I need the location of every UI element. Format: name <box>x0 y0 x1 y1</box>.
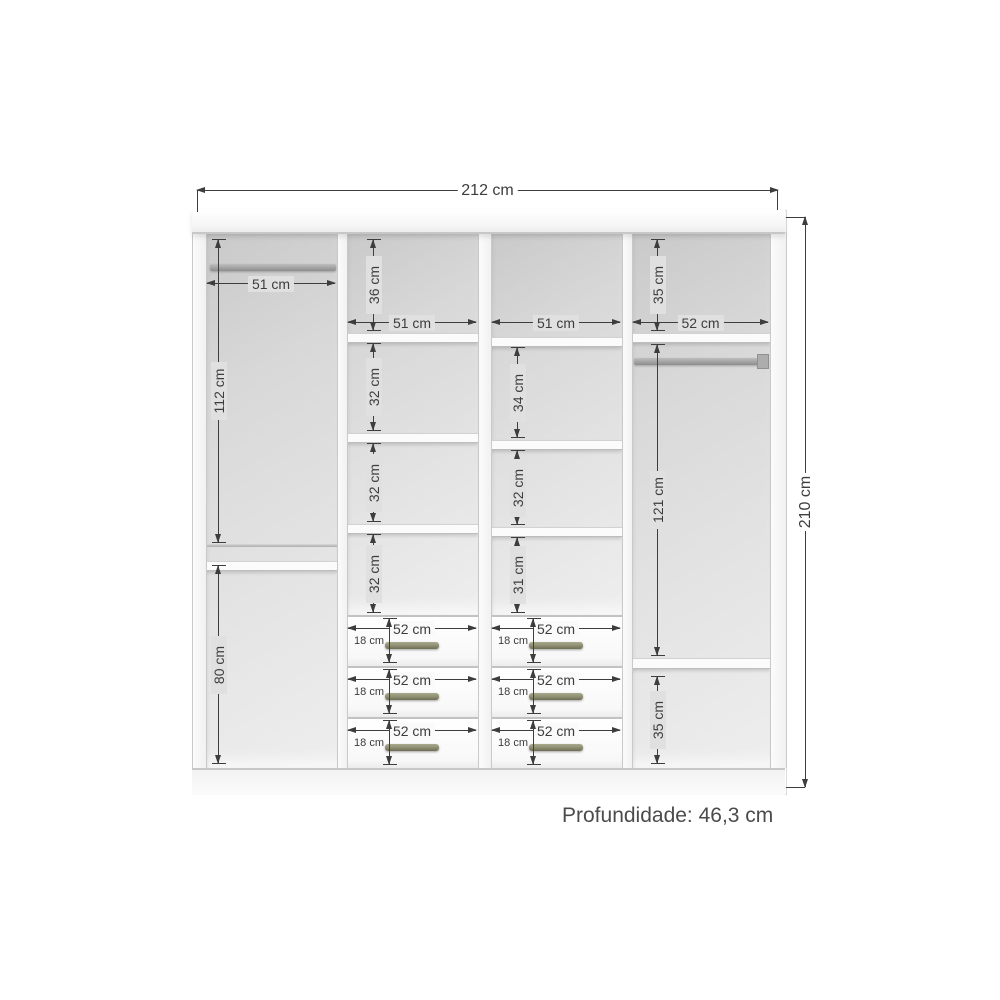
dim-midright-cell3-height: 31 cm <box>517 538 518 612</box>
dim-drawer-width: 52 cm <box>492 679 620 680</box>
dim-label: 36 cm <box>366 256 382 314</box>
dim-drawer-height: 18 cm <box>389 721 390 764</box>
dim-label: 51 cm <box>389 315 435 331</box>
dim-midleft-top-cell-height: 36 cm <box>373 240 374 330</box>
shelf <box>490 527 622 537</box>
shelf <box>631 658 770 669</box>
dim-label: 210 cm <box>798 473 814 531</box>
dim-midright-cell1-height: 34 cm <box>517 348 518 437</box>
drawer-handle <box>529 642 583 649</box>
dim-midright-cell2-height: 32 cm <box>517 451 518 524</box>
hanging-rod <box>634 358 768 365</box>
dim-left-rod-width: 51 cm <box>207 283 335 284</box>
dim-label: 32 cm <box>366 454 382 512</box>
drawer-handle <box>385 642 439 649</box>
dim-right-top-cell-height: 35 cm <box>657 240 658 330</box>
dim-drawer-height: 18 cm <box>533 721 534 764</box>
dim-drawer-height: 18 cm <box>533 670 534 713</box>
divider-panel <box>478 232 492 768</box>
dim-label: 34 cm <box>510 364 526 422</box>
dim-label: 121 cm <box>650 471 666 529</box>
dim-label: 80 cm <box>211 636 227 694</box>
dim-label: 112 cm <box>211 362 227 420</box>
dim-label: 32 cm <box>366 358 382 416</box>
dim-drawer-height: 18 cm <box>389 670 390 713</box>
shelf <box>490 440 622 450</box>
base-panel <box>192 768 785 795</box>
dim-drawer-width: 52 cm <box>348 730 476 731</box>
dim-label: 35 cm <box>650 691 666 749</box>
dim-label: 212 cm <box>457 183 517 199</box>
dim-label: 52 cm <box>389 672 435 688</box>
wardrobe-diagram: 212 cm 210 cm 51 cm 112 cm 80 cm 36 cm 5… <box>0 0 1000 1000</box>
extension-line <box>786 217 805 218</box>
extension-line <box>777 190 778 210</box>
side-panel-left <box>192 232 207 768</box>
dim-left-upper-height: 112 cm <box>218 240 219 542</box>
dim-label: 18 cm <box>352 633 386 649</box>
hanging-rod <box>205 544 337 547</box>
hanging-rod <box>210 264 336 271</box>
dim-label: 32 cm <box>366 545 382 603</box>
dim-label: 18 cm <box>496 633 530 649</box>
dim-midright-width: 51 cm <box>492 322 620 323</box>
dim-label: 18 cm <box>496 684 530 700</box>
dim-label: 52 cm <box>389 723 435 739</box>
dim-label: 52 cm <box>389 621 435 637</box>
extension-line <box>786 787 805 788</box>
dim-midleft-cell3-height: 32 cm <box>373 535 374 612</box>
drawer-handle <box>385 693 439 700</box>
dim-label: 52 cm <box>533 621 579 637</box>
dim-drawer-height: 18 cm <box>533 619 534 662</box>
dim-drawer-width: 52 cm <box>348 679 476 680</box>
dim-label: 52 cm <box>533 672 579 688</box>
dim-left-lower-height: 80 cm <box>218 566 219 763</box>
shelf <box>346 333 478 343</box>
rod-support <box>757 354 769 369</box>
dim-midleft-width: 51 cm <box>348 322 476 323</box>
dim-label: 51 cm <box>533 315 579 331</box>
dim-label: 18 cm <box>352 735 386 751</box>
shelf <box>205 561 337 571</box>
drawer-handle <box>529 693 583 700</box>
divider-panel <box>622 232 633 768</box>
depth-label: Profundidade: 46,3 cm <box>562 804 773 828</box>
dim-drawer-width: 52 cm <box>492 628 620 629</box>
shelf <box>346 524 478 534</box>
dim-right-bottom-cell-height: 35 cm <box>657 677 658 763</box>
drawer-handle <box>385 744 439 751</box>
dim-drawer-width: 52 cm <box>492 730 620 731</box>
dim-right-width: 52 cm <box>633 322 768 323</box>
dim-label: 35 cm <box>650 256 666 314</box>
dim-midleft-cell2-height: 32 cm <box>373 444 374 521</box>
dim-label: 31 cm <box>510 546 526 604</box>
side-panel-right <box>770 232 787 768</box>
dim-midleft-cell1-height: 32 cm <box>373 344 374 430</box>
dim-label: 51 cm <box>248 276 294 292</box>
dim-label: 52 cm <box>533 723 579 739</box>
dim-label: 32 cm <box>510 459 526 517</box>
dim-overall-height: 210 cm <box>805 217 806 787</box>
dim-drawer-height: 18 cm <box>389 619 390 662</box>
dim-label: 52 cm <box>677 315 723 331</box>
extension-line <box>197 190 198 212</box>
shelf <box>631 333 770 343</box>
shelf <box>490 337 622 347</box>
top-panel <box>192 210 785 234</box>
dim-right-middle-height: 121 cm <box>657 345 658 655</box>
dim-overall-width: 212 cm <box>197 190 778 191</box>
dim-drawer-width: 52 cm <box>348 628 476 629</box>
shelf <box>346 433 478 443</box>
dim-label: 18 cm <box>352 684 386 700</box>
drawer-handle <box>529 744 583 751</box>
dim-label: 18 cm <box>496 735 530 751</box>
divider-panel <box>337 232 348 768</box>
